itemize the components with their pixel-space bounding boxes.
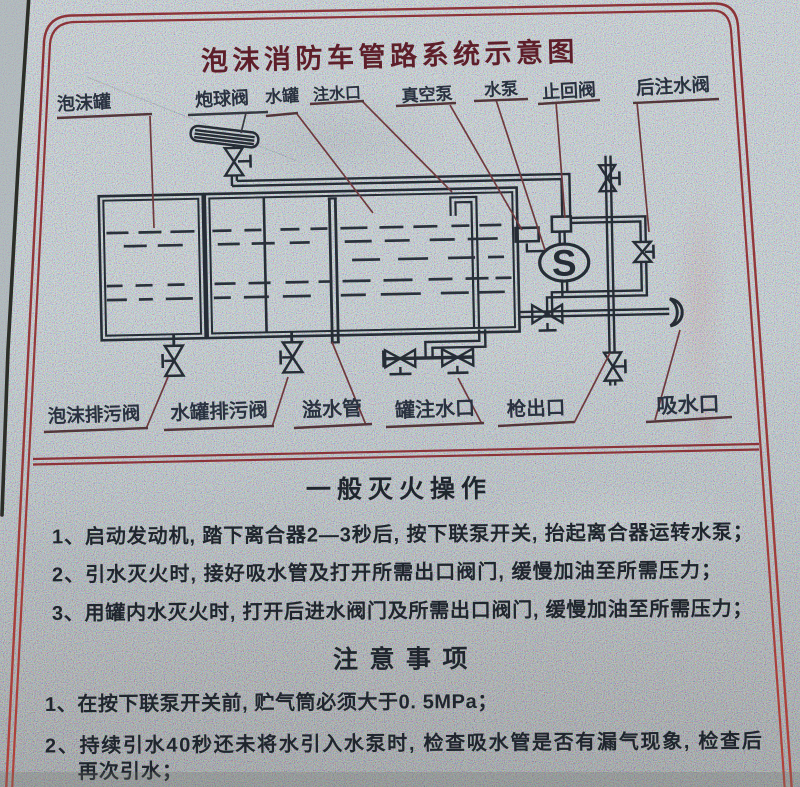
svg-text:泡沫罐: 泡沫罐 [56,91,111,115]
svg-text:溢水管: 溢水管 [302,396,363,422]
svg-text:枪出口: 枪出口 [506,396,565,421]
svg-text:吸水口: 吸水口 [656,393,720,418]
svg-text:泡沫排污阀: 泡沫排污阀 [47,402,140,426]
svg-text:炮球阀: 炮球阀 [194,87,249,111]
svg-text:后注水阀: 后注水阀 [635,74,710,99]
svg-text:注意事项: 注意事项 [333,644,479,674]
svg-text:水罐: 水罐 [264,85,299,107]
svg-text:真空泵: 真空泵 [401,83,453,106]
svg-text:水罐排污阀: 水罐排污阀 [170,398,268,424]
svg-text:罐注水口: 罐注水口 [394,396,476,423]
svg-text:S: S [551,242,577,284]
svg-text:1、在按下联泵开关前, 贮气筒必须大于0. 5MPa；: 1、在按下联泵开关前, 贮气筒必须大于0. 5MPa； [45,689,498,716]
svg-text:水泵: 水泵 [483,78,518,100]
svg-text:注水口: 注水口 [313,83,362,104]
svg-text:一般灭火操作: 一般灭火操作 [306,474,492,504]
svg-text:止回阀: 止回阀 [541,79,596,103]
